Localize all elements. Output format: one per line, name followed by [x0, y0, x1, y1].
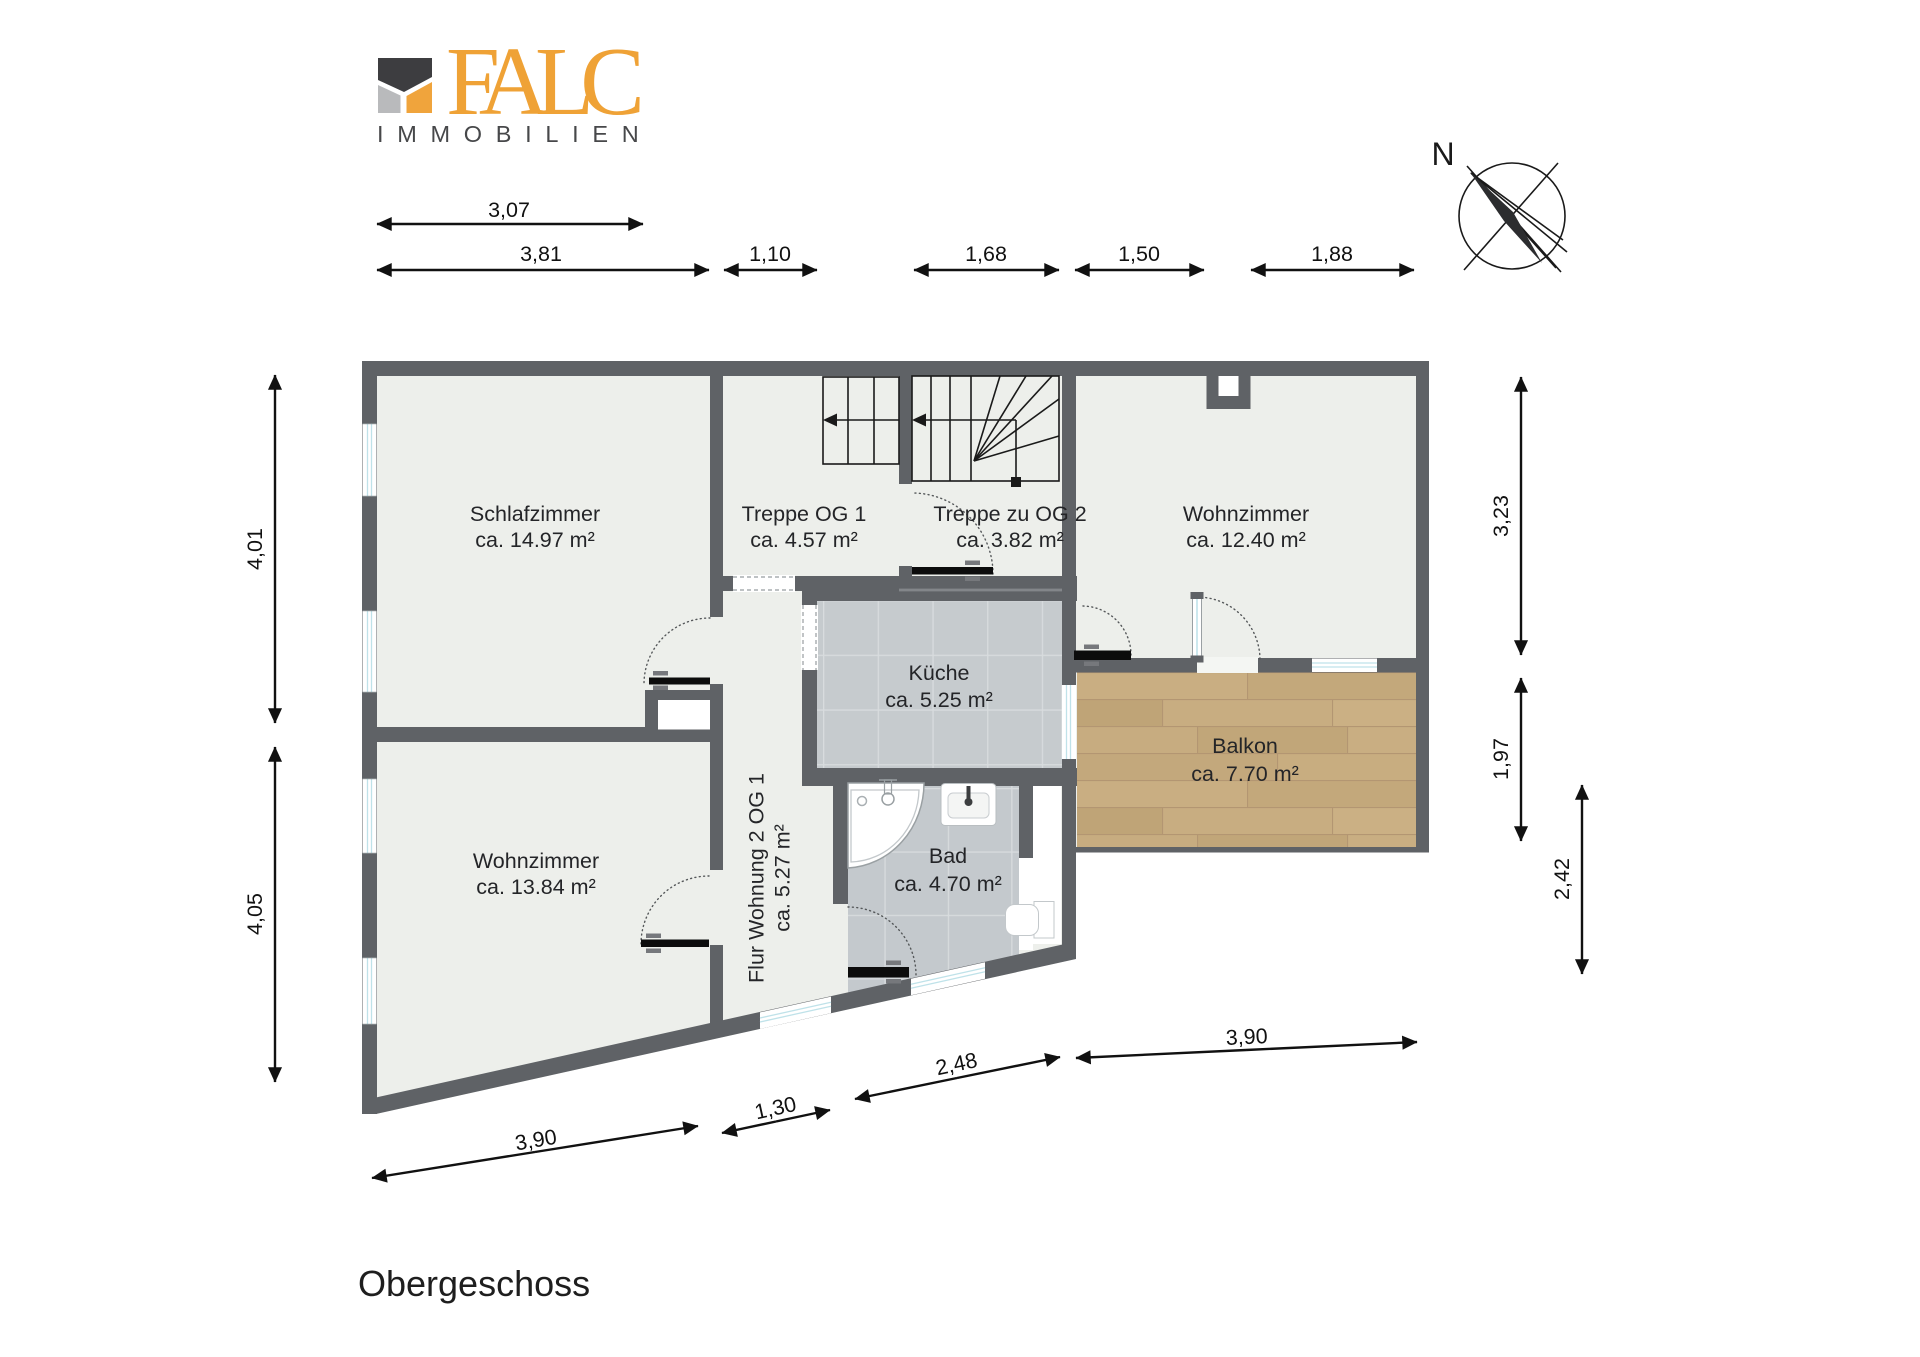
svg-text:ca. 4.70 m²: ca. 4.70 m²: [894, 872, 1002, 896]
svg-text:Wohnzimmer: Wohnzimmer: [1183, 502, 1309, 526]
svg-text:1,30: 1,30: [752, 1092, 798, 1124]
svg-text:Küche: Küche: [909, 661, 970, 685]
svg-text:ca. 7.70 m²: ca. 7.70 m²: [1191, 762, 1299, 786]
svg-text:3,07: 3,07: [488, 198, 530, 222]
svg-text:3,23: 3,23: [1489, 495, 1513, 537]
svg-text:IMMOBILIEN: IMMOBILIEN: [377, 121, 652, 147]
svg-text:ca. 12.40 m²: ca. 12.40 m²: [1186, 528, 1306, 552]
svg-text:Obergeschoss: Obergeschoss: [358, 1263, 590, 1304]
svg-text:1,10: 1,10: [749, 242, 791, 266]
svg-text:Bad: Bad: [929, 844, 967, 868]
svg-text:ca. 5.27 m²: ca. 5.27 m²: [771, 824, 795, 932]
svg-text:2,42: 2,42: [1550, 858, 1574, 900]
svg-text:ca. 3.82 m²: ca. 3.82 m²: [956, 528, 1064, 552]
svg-text:1,50: 1,50: [1118, 242, 1160, 266]
svg-text:ca. 4.57 m²: ca. 4.57 m²: [750, 528, 858, 552]
svg-text:Wohnzimmer: Wohnzimmer: [473, 849, 599, 873]
svg-text:ca. 14.97 m²: ca. 14.97 m²: [475, 528, 595, 552]
svg-text:4,01: 4,01: [243, 528, 267, 570]
svg-text:4,05: 4,05: [243, 893, 267, 935]
svg-text:3,90: 3,90: [1225, 1024, 1268, 1050]
svg-text:N: N: [1431, 136, 1454, 172]
svg-text:1,97: 1,97: [1489, 738, 1513, 780]
svg-text:Balkon: Balkon: [1212, 734, 1278, 758]
svg-text:FALC: FALC: [446, 28, 645, 135]
svg-text:Flur Wohnung 2 OG 1: Flur Wohnung 2 OG 1: [745, 773, 769, 983]
svg-text:Treppe zu OG 2: Treppe zu OG 2: [933, 502, 1086, 526]
svg-text:1,68: 1,68: [965, 242, 1007, 266]
svg-text:Schlafzimmer: Schlafzimmer: [470, 502, 600, 526]
svg-text:ca. 13.84 m²: ca. 13.84 m²: [476, 875, 596, 899]
svg-text:Treppe OG 1: Treppe OG 1: [742, 502, 867, 526]
svg-text:ca. 5.25 m²: ca. 5.25 m²: [885, 688, 993, 712]
svg-text:3,81: 3,81: [520, 242, 562, 266]
svg-text:1,88: 1,88: [1311, 242, 1353, 266]
